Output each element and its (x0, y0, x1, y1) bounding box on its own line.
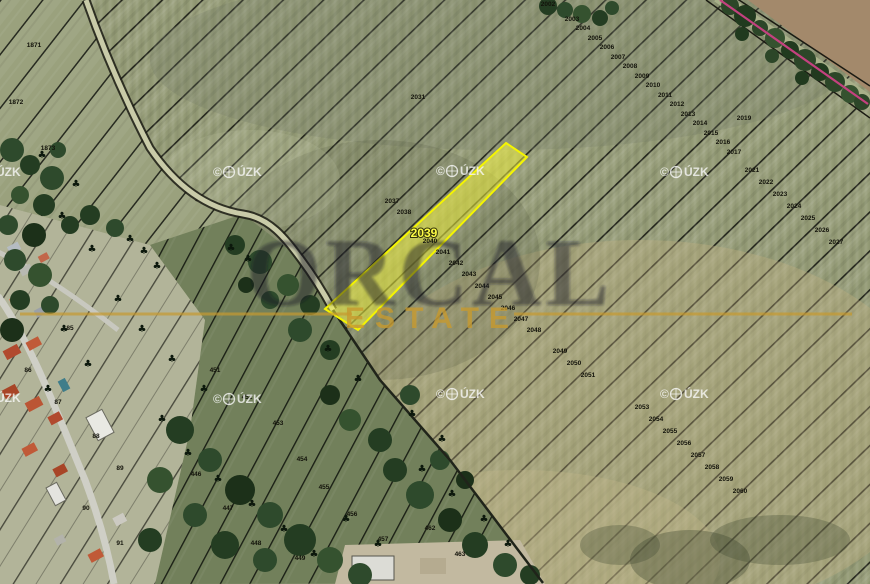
cuzk-watermark: ©ÚZK (436, 163, 485, 178)
parcel-number-label: 454 (297, 456, 308, 463)
tree-icon: ♣ (200, 384, 209, 395)
tree-icon: ♣ (88, 244, 97, 255)
parcel-number-label: 2057 (691, 452, 706, 459)
parcel-number-label: 2009 (635, 73, 650, 80)
tree-icon: ♣ (38, 150, 47, 161)
parcel-number-label: 2004 (576, 25, 591, 32)
cuzk-watermark: ©ÚZK (213, 164, 262, 179)
parcel-number-label: 2024 (787, 203, 802, 210)
farm-shed (420, 558, 446, 574)
parcel-number-label: 2002 (541, 1, 556, 8)
tree-icon: ♣ (184, 448, 193, 459)
source-label: ÚZK (460, 386, 485, 401)
source-label: ÚZK (0, 390, 21, 405)
tree-icon: ♣ (310, 549, 319, 560)
parcel-number-label: 449 (295, 555, 306, 562)
tree-icon: ♣ (138, 324, 147, 335)
parcel-number-label: 88 (92, 433, 100, 440)
parcel-number-label: 453 (273, 420, 284, 427)
parcel-number-label: 2050 (567, 360, 582, 367)
parcel-number-label: 2006 (600, 44, 615, 51)
tree-icon: ♣ (408, 409, 417, 420)
cuzk-watermark: ©ÚZK (660, 164, 709, 179)
parcel-number-label: 2027 (829, 239, 844, 246)
tree-icon: ♣ (374, 539, 383, 550)
parcel-number-label: 2054 (649, 416, 664, 423)
parcel-number-label: 2038 (397, 209, 412, 216)
parcel-number-label: 86 (24, 367, 32, 374)
parcel-number-label: 91 (116, 540, 124, 547)
parcel-number-label: 2023 (773, 191, 788, 198)
parcel-number-label: 2014 (693, 120, 708, 127)
parcel-number-label: 1871 (27, 42, 42, 49)
cuzk-watermark: ©ÚZK (660, 386, 709, 401)
tree-icon: ♣ (480, 514, 489, 525)
source-label: ÚZK (460, 163, 485, 178)
cadastral-map[interactable]: 2039 18711872187320022003200420052006200… (0, 0, 870, 584)
parcel-number-label: 2058 (705, 464, 720, 471)
parcel-number-label: 2053 (635, 404, 650, 411)
tree-icon: ♣ (248, 499, 257, 510)
parcel-number-label: 2011 (658, 92, 672, 99)
source-label: ÚZK (237, 391, 262, 406)
tree-icon: ♣ (354, 374, 363, 385)
parcel-number-label: 451 (210, 367, 221, 374)
copyright-icon: © (436, 164, 445, 178)
map-viewport[interactable]: 2039 18711872187320022003200420052006200… (0, 0, 870, 584)
parcel-number-label: 446 (191, 471, 202, 478)
tree-icon: ♣ (448, 489, 457, 500)
parcel-number-label: 2019 (737, 115, 752, 122)
parcel-number-label: 2003 (565, 16, 580, 23)
parcel-number-label: 2059 (719, 476, 734, 483)
tree-icon: ♣ (44, 384, 53, 395)
parcel-number-label: 447 (223, 505, 234, 512)
parcel-number-label: 2007 (611, 54, 626, 61)
parcel-number-label: 2008 (623, 63, 638, 70)
tree-icon: ♣ (214, 474, 223, 485)
parcel-number-label: 87 (54, 399, 62, 406)
parcel-number-label: 2013 (681, 111, 696, 118)
tree-icon: ♣ (227, 243, 236, 254)
tree-icon: ♣ (140, 246, 149, 257)
tree-icon: ♣ (342, 514, 351, 525)
tree-icon: ♣ (158, 414, 167, 425)
cuzk-watermark: ©ÚZK (0, 164, 21, 179)
tree-icon: ♣ (438, 434, 447, 445)
parcel-number-label: 2048 (527, 327, 542, 334)
tree-icon: ♣ (58, 211, 67, 222)
copyright-icon: © (660, 387, 669, 401)
parcel-number-label: 2022 (759, 179, 774, 186)
copyright-icon: © (660, 165, 669, 179)
parcel-number-label: 2017 (727, 149, 742, 156)
parcel-number-label: 2049 (553, 348, 568, 355)
tree-icon: ♣ (324, 344, 333, 355)
tree-icon: ♣ (72, 179, 81, 190)
tree-icon: ♣ (504, 539, 513, 550)
parcel-number-label: 463 (455, 551, 466, 558)
parcel-number-label: 2026 (815, 227, 830, 234)
parcel-number-label: 1872 (9, 99, 24, 106)
cuzk-watermark: ©ÚZK (0, 390, 21, 405)
parcel-number-label: 2056 (677, 440, 692, 447)
parcel-number-label: 462 (425, 525, 436, 532)
parcel-number-label: 2021 (745, 167, 760, 174)
cuzk-watermark: ©ÚZK (436, 386, 485, 401)
tree-icon: ♣ (60, 324, 69, 335)
parcel-number-label: 89 (116, 465, 124, 472)
parcel-number-label: 2025 (801, 215, 816, 222)
parcel-number-label: 2051 (581, 372, 596, 379)
cuzk-watermark: ©ÚZK (213, 391, 262, 406)
parcel-number-label: 2037 (385, 198, 400, 205)
parcel-number-label: 448 (251, 540, 262, 547)
parcel-number-label: 2016 (716, 139, 731, 146)
tree-icon: ♣ (168, 354, 177, 365)
source-label: ÚZK (684, 164, 709, 179)
copyright-icon: © (213, 165, 222, 179)
parcel-number-label: 2060 (733, 488, 748, 495)
tree-icon: ♣ (114, 294, 123, 305)
source-label: ÚZK (237, 164, 262, 179)
parcel-number-label: 2005 (588, 35, 603, 42)
tree-icon: ♣ (153, 261, 162, 272)
parcel-number-label: 90 (82, 505, 90, 512)
tree-icon: ♣ (126, 234, 135, 245)
parcel-number-label: 2015 (704, 130, 719, 137)
parcel-number-label: 2055 (663, 428, 678, 435)
tree-icon: ♣ (280, 524, 289, 535)
parcel-number-label: 455 (319, 484, 330, 491)
copyright-icon: © (213, 392, 222, 406)
tree-icon: ♣ (418, 464, 427, 475)
brand-subtitle: ESTATE (345, 302, 519, 335)
source-label: ÚZK (684, 386, 709, 401)
copyright-icon: © (436, 387, 445, 401)
parcel-number-label: 2031 (411, 94, 426, 101)
tree-icon: ♣ (84, 359, 93, 370)
parcel-number-label: 2010 (646, 82, 661, 89)
source-label: ÚZK (0, 164, 21, 179)
parcel-number-label: 2012 (670, 101, 685, 108)
